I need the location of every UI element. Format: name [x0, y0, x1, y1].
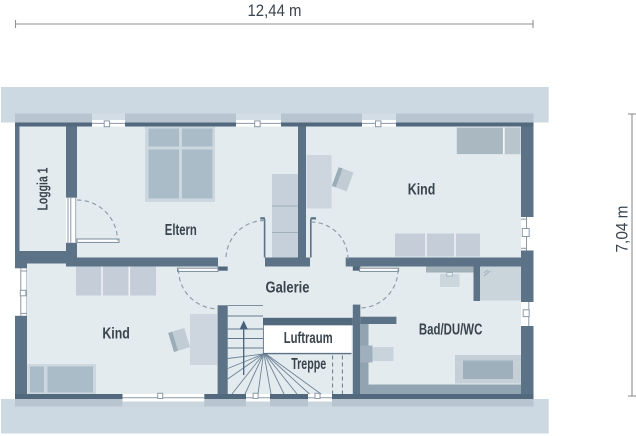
svg-text:Bad/DU/WC: Bad/DU/WC	[419, 322, 483, 339]
svg-text:Galerie: Galerie	[266, 280, 310, 297]
svg-text:12,44 m: 12,44 m	[248, 1, 302, 20]
svg-text:Kind: Kind	[408, 182, 436, 199]
svg-text:7,04 m: 7,04 m	[613, 206, 632, 253]
svg-text:Loggia 1: Loggia 1	[36, 168, 52, 211]
svg-text:Luftraum: Luftraum	[284, 330, 333, 347]
svg-text:Treppe: Treppe	[291, 356, 326, 373]
svg-text:Eltern: Eltern	[165, 222, 197, 239]
svg-text:Kind: Kind	[102, 326, 130, 343]
